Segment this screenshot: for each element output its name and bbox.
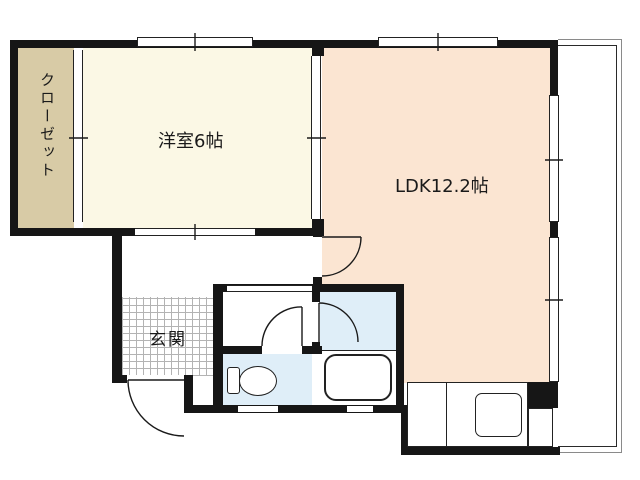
toilet-bowl — [239, 366, 277, 396]
window-right-lower — [549, 237, 559, 382]
window-right-upper — [549, 95, 559, 222]
stove — [475, 393, 522, 437]
wall-bottom-east — [401, 447, 560, 455]
closet-sliding-door — [73, 50, 83, 222]
wall-pillar-kitchen — [528, 382, 558, 408]
floor-plan: クローゼット 洋室6帖 LDK12.2帖 玄関 — [0, 0, 640, 480]
washroom-door-gap — [262, 346, 302, 354]
western-room-sliding-door — [135, 228, 255, 236]
wall-right-mullion — [550, 222, 558, 237]
wall-left — [10, 40, 18, 236]
western-room-label: 洋室6帖 — [158, 127, 223, 153]
closet-label: クローゼット — [37, 72, 58, 180]
kitchen-counter-divider — [446, 382, 447, 447]
bathroom-door-gap — [312, 302, 320, 342]
ldk-label: LDK12.2帖 — [395, 172, 489, 198]
washroom-opening — [227, 285, 312, 292]
entrance-door-arc — [128, 380, 184, 436]
wall-right-upper — [550, 44, 558, 95]
partition-western-ldk — [311, 56, 321, 219]
wall-bathroom-top — [312, 284, 404, 292]
kitchen-counter-right — [528, 408, 553, 447]
washroom-floor — [223, 292, 312, 346]
ldk-door-gap — [313, 237, 322, 277]
bathroom-wall-notch — [347, 406, 373, 412]
window-top-east — [378, 37, 498, 47]
entrance-door-gap — [127, 375, 184, 383]
genkan-label: 玄関 — [149, 325, 187, 350]
bathtub — [324, 354, 392, 401]
toilet-wall-notch — [238, 406, 278, 412]
wall-hall-left — [112, 228, 122, 383]
bathroom-floor — [320, 292, 396, 350]
wall-bathroom-right — [396, 284, 404, 413]
wall-partition-stub-bottom — [312, 219, 324, 236]
wall-partition-stub-top — [312, 40, 324, 56]
balcony-inner-rail — [558, 45, 617, 447]
window-top-west — [137, 37, 253, 47]
